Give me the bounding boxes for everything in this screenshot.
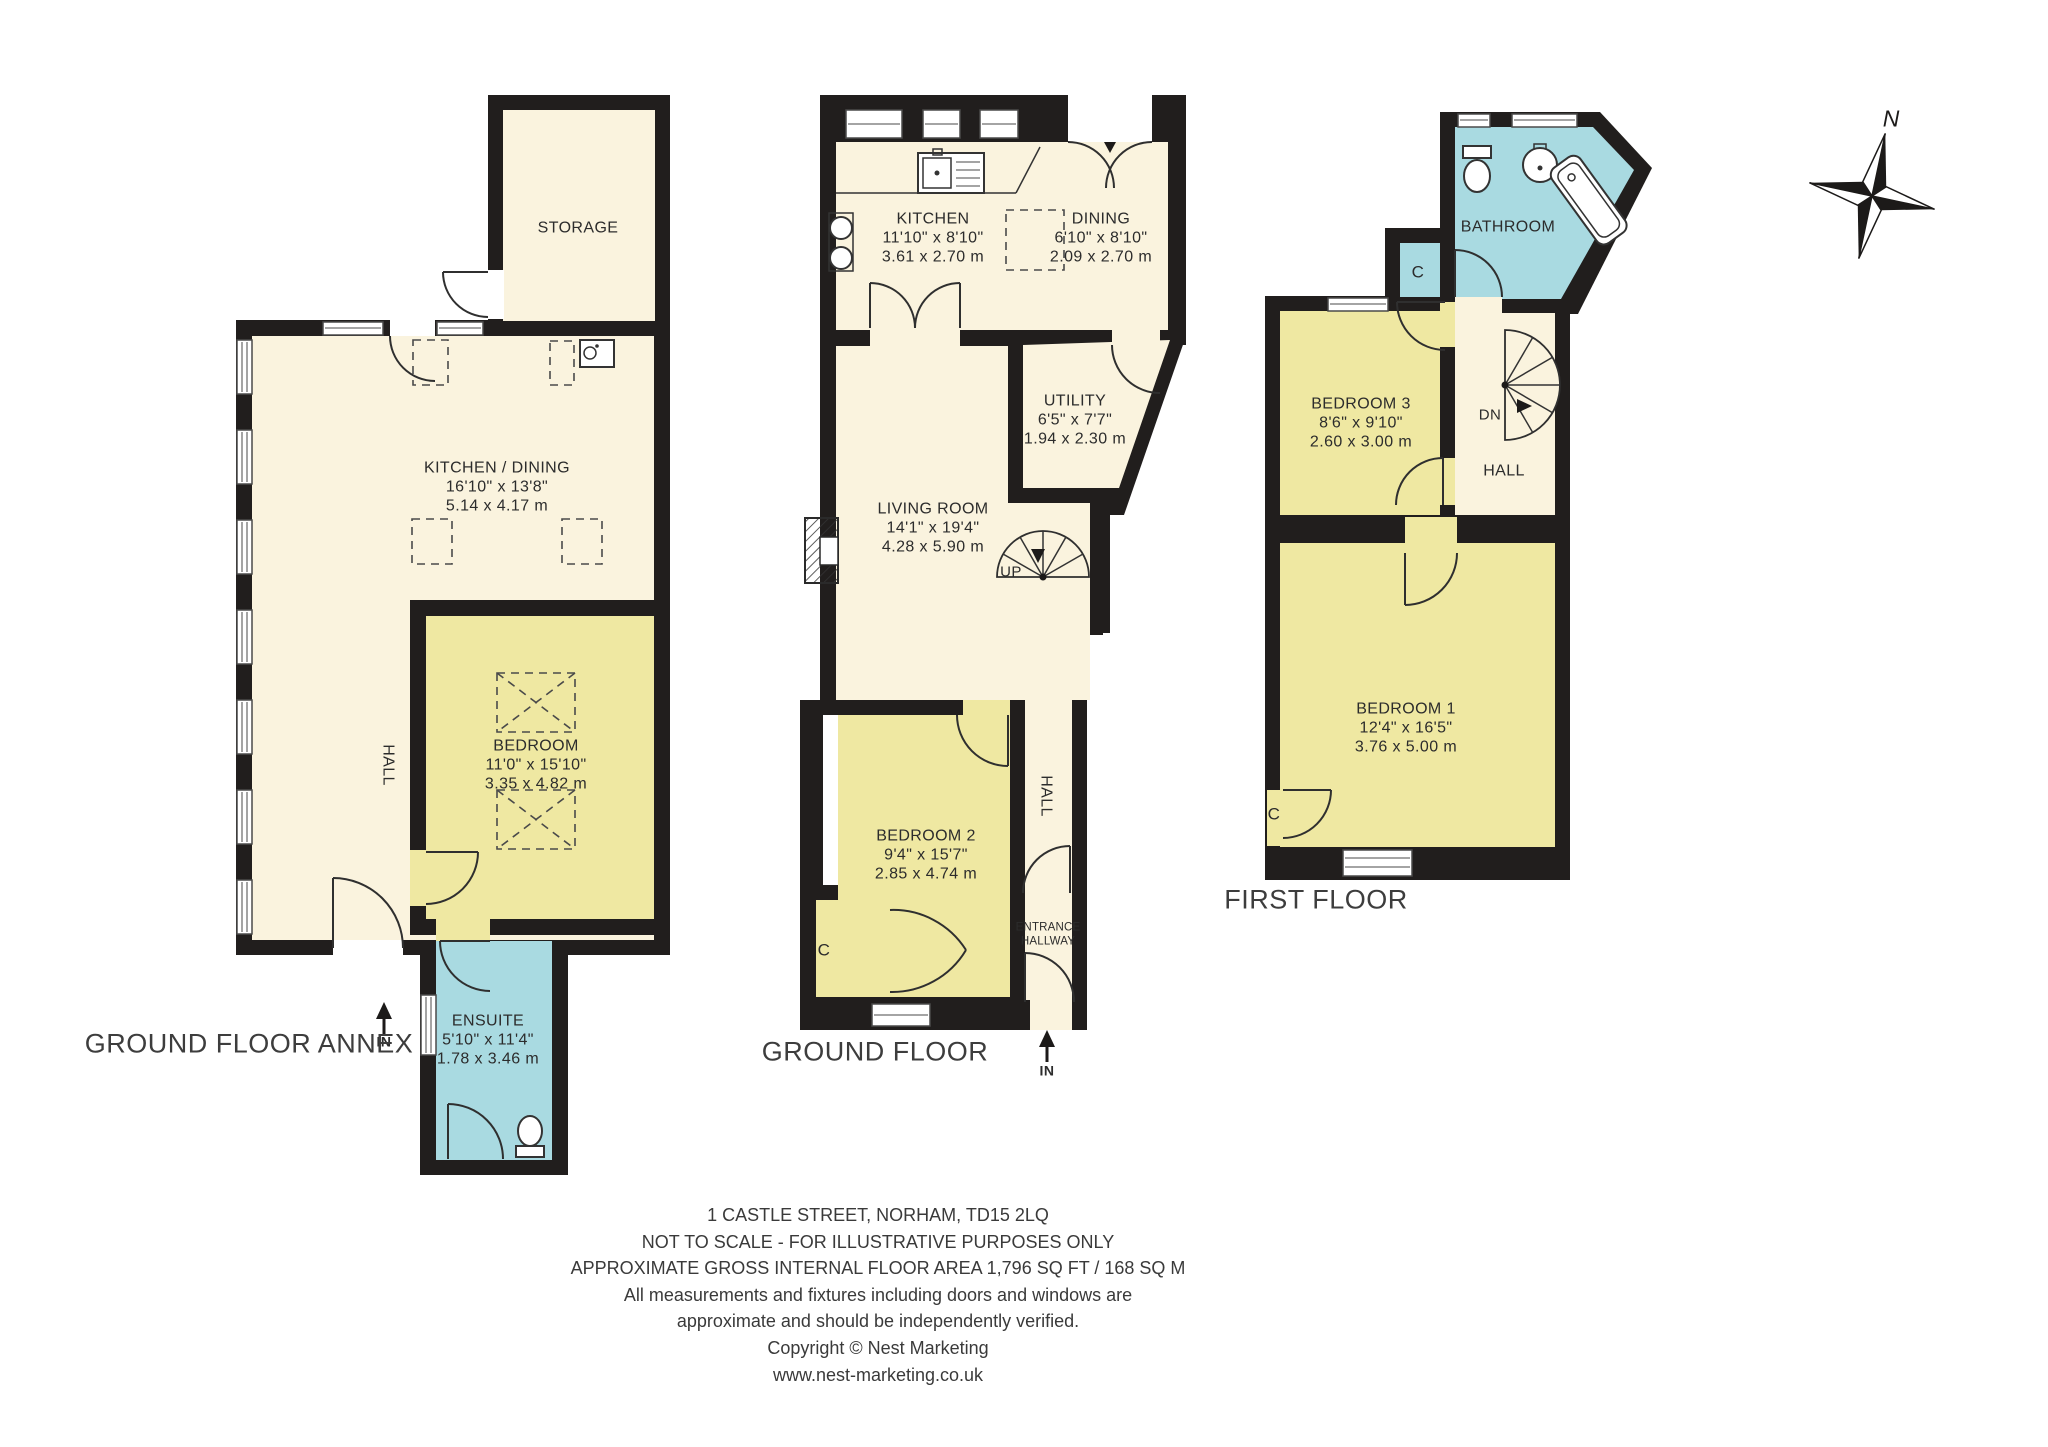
compass-icon [1796, 120, 1948, 272]
room-label-kitchen-dining: KITCHEN / DINING 16'10" x 13'8" 5.14 x 4… [424, 459, 570, 516]
room-size-metric: 3.35 x 4.82 m [485, 775, 587, 794]
room-size-imperial: 16'10" x 13'8" [424, 478, 570, 497]
room-size-imperial: 8'6" x 9'10" [1310, 414, 1412, 433]
room-label-bathroom: BATHROOM [1461, 218, 1555, 237]
closet-label-first-2: C [1268, 805, 1281, 824]
footer-floor-area: APPROXIMATE GROSS INTERNAL FLOOR AREA 1,… [378, 1255, 1378, 1282]
kitchen-sink-icon [918, 149, 984, 193]
room-size-metric: 4.28 x 5.90 m [877, 538, 988, 557]
room-size-metric: 2.85 x 4.74 m [875, 865, 977, 884]
fireplace-icon [805, 518, 838, 583]
room-label-annex-hall: HALL [379, 744, 398, 786]
room-size-metric: 3.76 x 5.00 m [1355, 738, 1457, 757]
room-size-imperial: 14'1" x 19'4" [877, 519, 988, 538]
room-name: KITCHEN / DINING [424, 459, 570, 478]
room-label-bedroom: BEDROOM 11'0" x 15'10" 3.35 x 4.82 m [485, 737, 587, 794]
closet-label-ground: C [818, 941, 831, 960]
room-size-imperial: 6'10" x 8'10" [1050, 229, 1152, 248]
room-size-imperial: 12'4" x 16'5" [1355, 719, 1457, 738]
room-name: DINING [1050, 210, 1152, 229]
room-name: ENSUITE [437, 1012, 539, 1031]
room-size-imperial: 6'5" x 7'7" [1024, 411, 1126, 430]
toilet-icon [516, 1116, 544, 1157]
room-name: BEDROOM 1 [1355, 700, 1457, 719]
floor-title-first: FIRST FLOOR [1224, 885, 1408, 916]
room-label-kitchen: KITCHEN 11'10" x 8'10" 3.61 x 2.70 m [882, 210, 984, 267]
room-label-bedroom1: BEDROOM 1 12'4" x 16'5" 3.76 x 5.00 m [1355, 700, 1457, 757]
room-size-metric: 3.61 x 2.70 m [882, 248, 984, 267]
room-label-ground-hall: HALL [1037, 775, 1056, 817]
room-size-metric: 1.78 x 3.46 m [437, 1050, 539, 1069]
room-label-bedroom2: BEDROOM 2 9'4" x 15'7" 2.85 x 4.74 m [875, 827, 977, 884]
room-label-living-room: LIVING ROOM 14'1" x 19'4" 4.28 x 5.90 m [877, 500, 988, 557]
first-plan [1265, 112, 1652, 880]
footer-disclaimer-scale: NOT TO SCALE - FOR ILLUSTRATIVE PURPOSES… [378, 1229, 1378, 1256]
entry-label-ground: IN [1040, 1062, 1055, 1081]
room-name: KITCHEN [882, 210, 984, 229]
room-label-utility: UTILITY 6'5" x 7'7" 1.94 x 2.30 m [1024, 392, 1126, 449]
room-label-first-hall: HALL [1483, 462, 1525, 481]
room-size-metric: 2.60 x 3.00 m [1310, 433, 1412, 452]
footer-disclaimer-2: approximate and should be independently … [378, 1308, 1378, 1335]
room-size-imperial: 5'10" x 11'4" [437, 1031, 539, 1050]
footer-address: 1 CASTLE STREET, NORHAM, TD15 2LQ [378, 1202, 1378, 1229]
compass-north-label: N [1883, 106, 1900, 133]
toilet-icon [1463, 146, 1491, 192]
room-name: BEDROOM 3 [1310, 395, 1412, 414]
stairs-label-up: UP [1000, 563, 1022, 582]
room-label-storage: STORAGE [538, 219, 619, 238]
floor-title-annex: GROUND FLOOR ANNEX [85, 1029, 414, 1060]
room-size-metric: 1.94 x 2.30 m [1024, 430, 1126, 449]
entry-arrow-icon [1039, 1030, 1055, 1062]
stairs-label-dn: DN [1479, 406, 1501, 425]
room-label-ensuite: ENSUITE 5'10" x 11'4" 1.78 x 3.46 m [437, 1012, 539, 1069]
closet-label-first-1: C [1412, 263, 1425, 282]
room-label-entrance-hallway: ENTRANCE HALLWAY [1005, 922, 1091, 949]
room-name: UTILITY [1024, 392, 1126, 411]
room-size-metric: 2.09 x 2.70 m [1050, 248, 1152, 267]
footer-text: 1 CASTLE STREET, NORHAM, TD15 2LQ NOT TO… [378, 1202, 1378, 1388]
footer-copyright: Copyright © Nest Marketing [378, 1335, 1378, 1362]
room-size-metric: 5.14 x 4.17 m [424, 497, 570, 516]
footer-website: www.nest-marketing.co.uk [378, 1362, 1378, 1389]
room-name: BEDROOM [485, 737, 587, 756]
room-label-dining: DINING 6'10" x 8'10" 2.09 x 2.70 m [1050, 210, 1152, 267]
footer-disclaimer-1: All measurements and fixtures including … [378, 1282, 1378, 1309]
floorplan-page: N STORAGE KITCHEN / DINING 16'10" x 13'8… [0, 0, 2048, 1447]
room-size-imperial: 9'4" x 15'7" [875, 846, 977, 865]
room-name: LIVING ROOM [877, 500, 988, 519]
room-name: BEDROOM 2 [875, 827, 977, 846]
room-label-bedroom3: BEDROOM 3 8'6" x 9'10" 2.60 x 3.00 m [1310, 395, 1412, 452]
room-size-imperial: 11'0" x 15'10" [485, 756, 587, 775]
room-size-imperial: 11'10" x 8'10" [882, 229, 984, 248]
floor-title-ground: GROUND FLOOR [762, 1037, 989, 1068]
